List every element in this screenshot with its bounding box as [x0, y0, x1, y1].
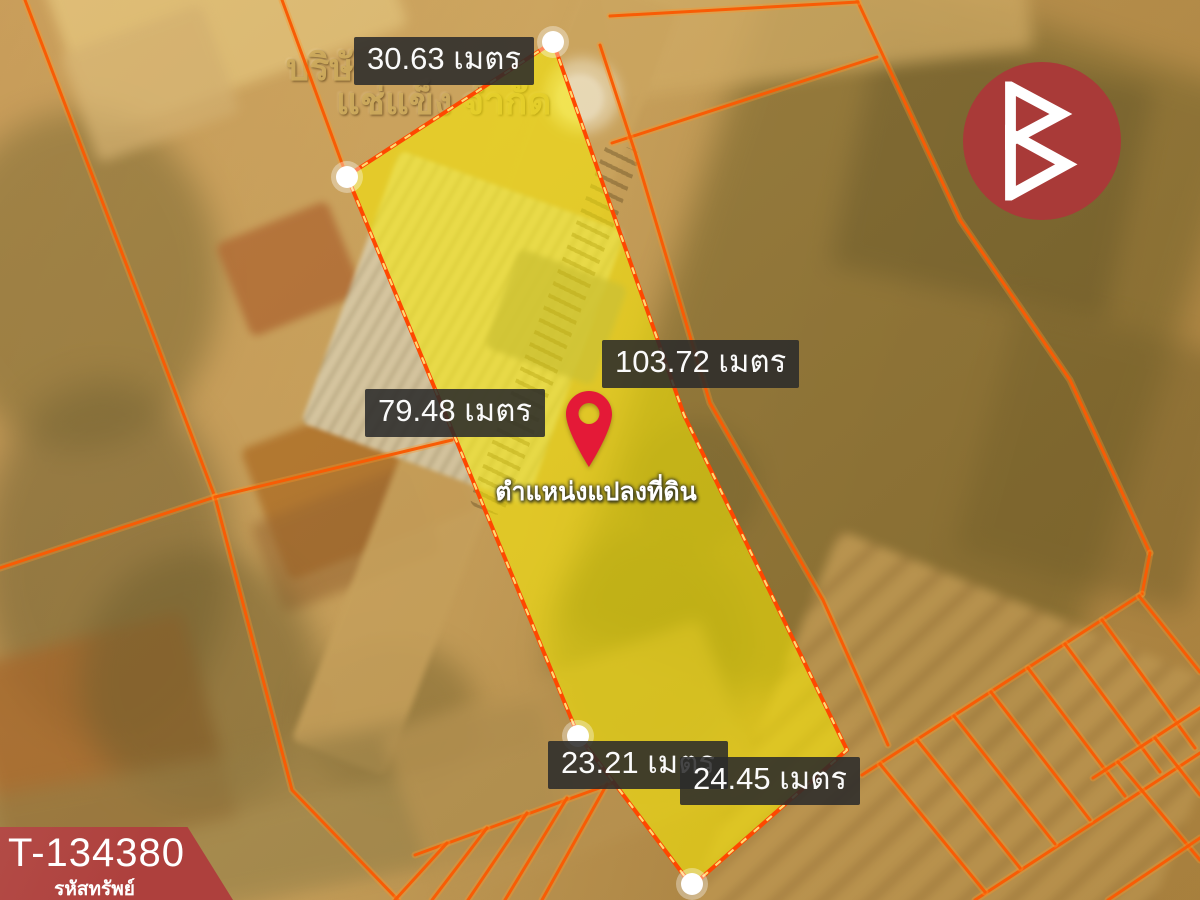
measurement-label-bottom-right: 24.45 เมตร	[680, 757, 860, 805]
parcel-boundary-line	[282, 0, 347, 177]
property-id-caption: รหัสทรัพย์	[0, 874, 189, 900]
plot-vertex-marker	[542, 31, 564, 53]
parcel-boundary-line	[1102, 620, 1195, 748]
measurement-label-left: 79.48 เมตร	[365, 389, 545, 437]
measurement-label-top: 30.63 เมตร	[354, 37, 534, 85]
triangle-b-logo-icon	[1002, 82, 1092, 201]
parcel-boundary-line	[954, 716, 1055, 844]
plot-vertex-marker	[336, 166, 358, 188]
parcel-boundary-line	[1108, 838, 1200, 900]
parcel-boundary-line	[0, 497, 215, 568]
parcel-boundary-line	[542, 784, 607, 900]
measurement-label-right: 103.72 เมตร	[602, 340, 799, 388]
parcel-boundary-line	[1139, 596, 1200, 672]
property-map-image: บริษั แช่แข็ง จำกัด 30.63 เมตร 103.72 เม…	[0, 0, 1200, 900]
parcel-boundary-line	[917, 740, 1020, 868]
parcel-boundary-line	[215, 497, 398, 900]
brand-logo	[963, 62, 1121, 220]
property-id: T-134380	[0, 833, 193, 873]
parcel-boundary-line	[610, 2, 858, 16]
parcel-boundary-line	[1065, 644, 1160, 772]
parcel-boundary-line	[612, 57, 877, 143]
parcel-boundary-line	[25, 0, 215, 497]
parcel-boundary-line	[1028, 668, 1125, 796]
parcel-boundary-line	[880, 764, 985, 892]
plot-vertex-marker	[681, 873, 703, 895]
parcel-boundary-line	[215, 440, 452, 497]
parcel-boundary-line	[991, 692, 1090, 820]
location-pin-icon	[566, 390, 612, 468]
parcel-boundary-line	[215, 497, 398, 900]
pin-caption: ตำแหน่งแปลงที่ดิน	[486, 472, 706, 512]
parcel-boundary-line	[975, 753, 1200, 900]
